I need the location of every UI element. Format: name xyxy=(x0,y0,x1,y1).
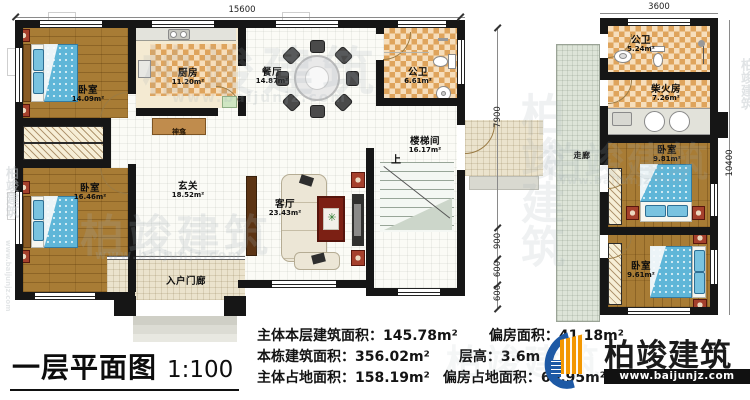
room-label-bedroom-bottom: 卧室 16.46m² xyxy=(60,184,120,202)
logo-building-icon xyxy=(560,334,584,374)
dim-side-right: 10400 xyxy=(725,145,735,181)
room-area: 14.87m² xyxy=(242,78,302,86)
dimension-line xyxy=(600,13,718,14)
fridge xyxy=(138,60,151,78)
wall xyxy=(600,135,718,143)
stove-cabinet xyxy=(222,96,237,108)
nightstand xyxy=(692,206,705,220)
stat-value: 145.78m² xyxy=(383,328,458,344)
up-text: 上 xyxy=(391,155,401,166)
plan-title: 一层平面图1:100 xyxy=(10,346,239,391)
room-label-hall: 玄关 18.52m² xyxy=(158,182,218,200)
chimney-stub xyxy=(718,112,728,138)
room-label-side-bedroom-bottom: 卧室 9.61m² xyxy=(611,262,671,280)
pillow xyxy=(33,49,44,71)
window xyxy=(152,20,214,28)
room-name: 走廊 xyxy=(568,152,596,161)
stat-value: 356.02m² xyxy=(355,349,430,365)
dim-main-right-1: 900 xyxy=(493,227,503,255)
sink-bowl xyxy=(180,31,187,38)
dim-main-right-0: 7900 xyxy=(493,101,503,133)
room-area: 9.61m² xyxy=(611,272,671,280)
wall xyxy=(128,20,136,94)
room-label-living: 客厅 23.43m² xyxy=(255,200,315,218)
stat-value: 158.19m² xyxy=(355,370,430,386)
wall xyxy=(376,98,465,106)
window xyxy=(15,192,23,244)
pillow xyxy=(33,221,44,241)
dining-chair xyxy=(310,105,325,118)
wall xyxy=(457,170,465,288)
dining-chair xyxy=(346,71,359,86)
bath-divider-line xyxy=(384,52,429,53)
wall xyxy=(238,96,246,116)
porch-pillar xyxy=(114,296,136,316)
room-label-stairwell: 楼梯间 16.17m² xyxy=(395,137,455,155)
room-label-side-bedroom-mid: 卧室 9.81m² xyxy=(637,146,697,164)
dim-main-top: 15600 xyxy=(212,5,272,15)
room-area: 9.81m² xyxy=(637,156,697,164)
dim-side-top: 3600 xyxy=(629,2,689,12)
wall xyxy=(600,227,718,235)
wardrobe-hatch xyxy=(23,126,111,143)
nightstand xyxy=(626,206,639,220)
porch-step xyxy=(133,334,237,342)
bed-headboard xyxy=(23,44,31,102)
stove-ring xyxy=(669,111,690,132)
window xyxy=(276,20,338,28)
porch-step xyxy=(133,325,237,334)
bath-sink-drain xyxy=(441,91,446,96)
dimension-line xyxy=(15,17,465,18)
wall xyxy=(128,164,136,292)
room-label-dining: 餐厅 14.87m² xyxy=(242,68,302,86)
window xyxy=(398,288,440,296)
plan-title-text: 一层平面图 xyxy=(12,351,157,384)
room-label-side-bath: 公卫 5.24m² xyxy=(611,36,671,54)
window xyxy=(628,18,690,26)
pillow xyxy=(33,200,44,220)
room-area: 7.26m² xyxy=(636,95,696,103)
window xyxy=(35,292,95,300)
stove-ring xyxy=(644,111,665,132)
window xyxy=(15,48,23,102)
toilet-tank xyxy=(448,54,456,69)
stairs-up-label: 上 xyxy=(386,155,406,166)
wall xyxy=(23,160,111,168)
stat-label: 偏房占地面积： xyxy=(443,370,541,386)
pillow xyxy=(645,205,666,217)
room-area: 18.52m² xyxy=(158,192,218,200)
dim-main-right-3: 600 xyxy=(493,279,503,307)
window xyxy=(710,184,718,216)
stat-label: 层高： xyxy=(459,349,501,365)
stat-label: 主体本层建筑面积： xyxy=(257,328,383,344)
wall xyxy=(136,108,218,116)
side-toilet-bowl xyxy=(653,53,663,67)
wall xyxy=(103,118,111,168)
porch-step xyxy=(133,316,237,325)
window xyxy=(457,40,465,84)
faucet xyxy=(438,38,448,41)
sink-bowl xyxy=(170,31,177,38)
wall xyxy=(376,20,384,34)
side-landing-step xyxy=(469,176,539,190)
wall xyxy=(600,72,718,80)
room-label-porch: 入户门廊 xyxy=(146,277,226,287)
toilet-bowl xyxy=(433,56,448,67)
shrine-label: 神龛 xyxy=(172,128,186,136)
bed-headboard xyxy=(23,196,31,248)
wall xyxy=(600,18,608,34)
logo-tower-icon xyxy=(551,360,561,377)
window xyxy=(710,250,718,284)
stat-value: 3.6m xyxy=(501,349,540,365)
wardrobe-hatch xyxy=(23,143,111,160)
pillow xyxy=(694,250,705,272)
wall xyxy=(238,20,246,66)
floor-plan-canvas: 神龛 ✳ xyxy=(0,0,750,400)
room-name: 入户门廊 xyxy=(146,277,226,287)
window xyxy=(628,307,690,315)
room-area: 23.43m² xyxy=(255,210,315,218)
tv-screen xyxy=(354,204,361,236)
window xyxy=(272,280,336,288)
room-label-corridor: 走廊 xyxy=(568,152,596,161)
pillow xyxy=(667,205,688,217)
room-label-firewood: 柴火房 7.26m² xyxy=(636,85,696,103)
plant-icon: ✳ xyxy=(325,211,339,225)
room-area: 11.20m² xyxy=(158,79,218,87)
firewood-utensil xyxy=(612,112,632,126)
shrine-shelf: 神龛 xyxy=(152,118,206,135)
lamp-table xyxy=(351,172,365,188)
room-area: 5.24m² xyxy=(611,46,671,54)
lamp-table xyxy=(351,250,365,266)
dining-table-center xyxy=(305,66,329,90)
room-area: 14.09m² xyxy=(58,96,118,104)
window xyxy=(398,20,446,28)
porch-pillar xyxy=(224,296,246,316)
watermark-text: 柏竣建筑 xyxy=(736,58,750,128)
plan-scale: 1:100 xyxy=(167,357,233,383)
watermark-url: www.baijunjz.com xyxy=(4,240,12,310)
corridor-floor xyxy=(556,44,600,322)
dining-chair xyxy=(310,40,325,53)
room-label-bedroom-top: 卧室 14.09m² xyxy=(58,86,118,104)
stat-label: 本栋建筑面积： xyxy=(257,349,355,365)
pillow xyxy=(694,272,705,294)
wall xyxy=(23,118,111,126)
room-area: 16.46m² xyxy=(60,194,120,202)
room-area: 6.61m² xyxy=(388,78,448,86)
room-label-bath: 公卫 6.61m² xyxy=(388,68,448,86)
shower-head xyxy=(698,40,705,47)
room-area: 16.17m² xyxy=(395,147,455,155)
room-label-kitchen: 厨房 11.20m² xyxy=(158,69,218,87)
wall xyxy=(366,148,374,288)
logo-website: www.baijunjz.com xyxy=(604,369,750,384)
stat-label: 主体占地面积： xyxy=(257,370,355,386)
company-logo: 柏竣建筑 www.baijunjz.com xyxy=(546,326,750,396)
pillow xyxy=(33,72,44,94)
window xyxy=(40,20,102,28)
